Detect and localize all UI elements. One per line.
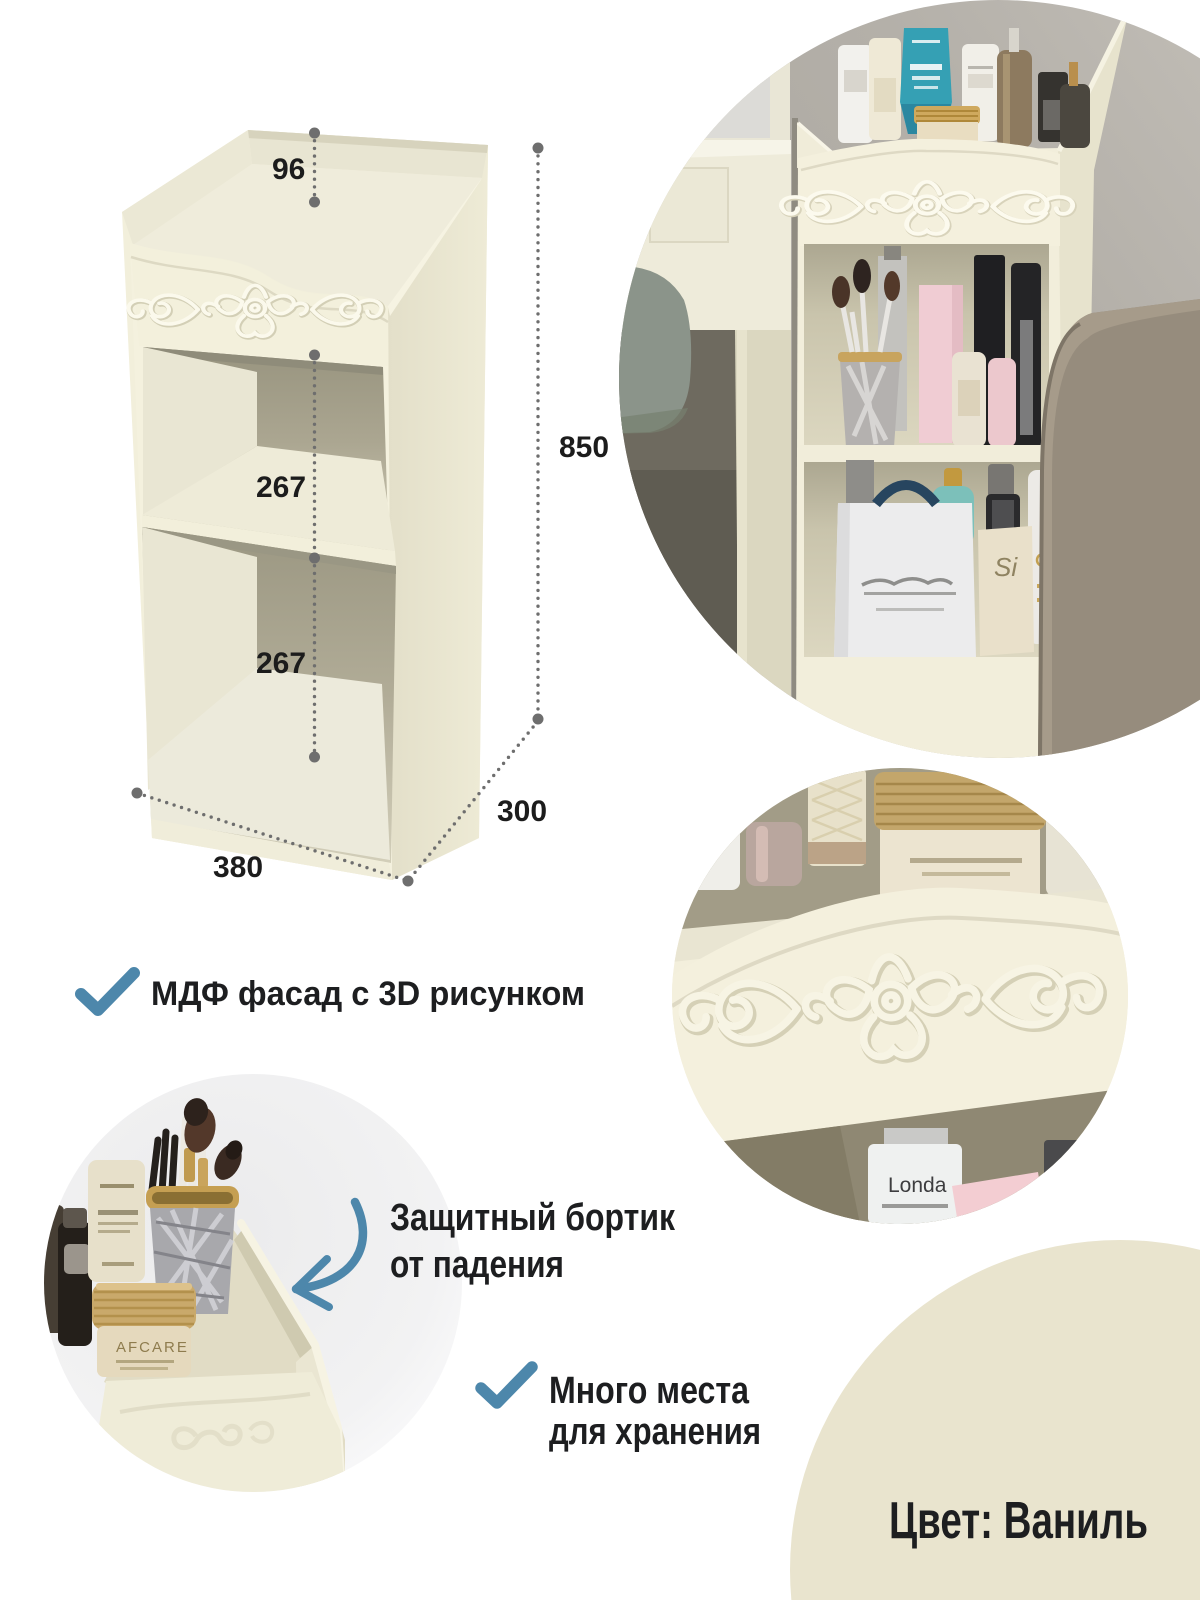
svg-text:267: 267 bbox=[256, 647, 306, 680]
svg-text:AFCARE: AFCARE bbox=[116, 1339, 189, 1356]
svg-text:380: 380 bbox=[213, 851, 263, 884]
svg-text:от падения: от падения bbox=[390, 1244, 564, 1286]
svg-text:96: 96 bbox=[272, 153, 305, 186]
svg-text:Londa: Londa bbox=[888, 1174, 947, 1197]
svg-text:300: 300 bbox=[497, 795, 547, 828]
svg-text:850: 850 bbox=[559, 431, 609, 464]
svg-text:Цвет: Ваниль: Цвет: Ваниль bbox=[889, 1492, 1148, 1550]
svg-text:Защитный бортик: Защитный бортик bbox=[390, 1197, 676, 1239]
svg-text:для хранения: для хранения bbox=[549, 1411, 761, 1453]
svg-text:МДФ фасад с 3D рисунком: МДФ фасад с 3D рисунком bbox=[151, 975, 585, 1013]
svg-text:267: 267 bbox=[256, 471, 306, 504]
svg-text:Много места: Много места bbox=[549, 1370, 750, 1412]
svg-text:Si: Si bbox=[994, 552, 1018, 582]
